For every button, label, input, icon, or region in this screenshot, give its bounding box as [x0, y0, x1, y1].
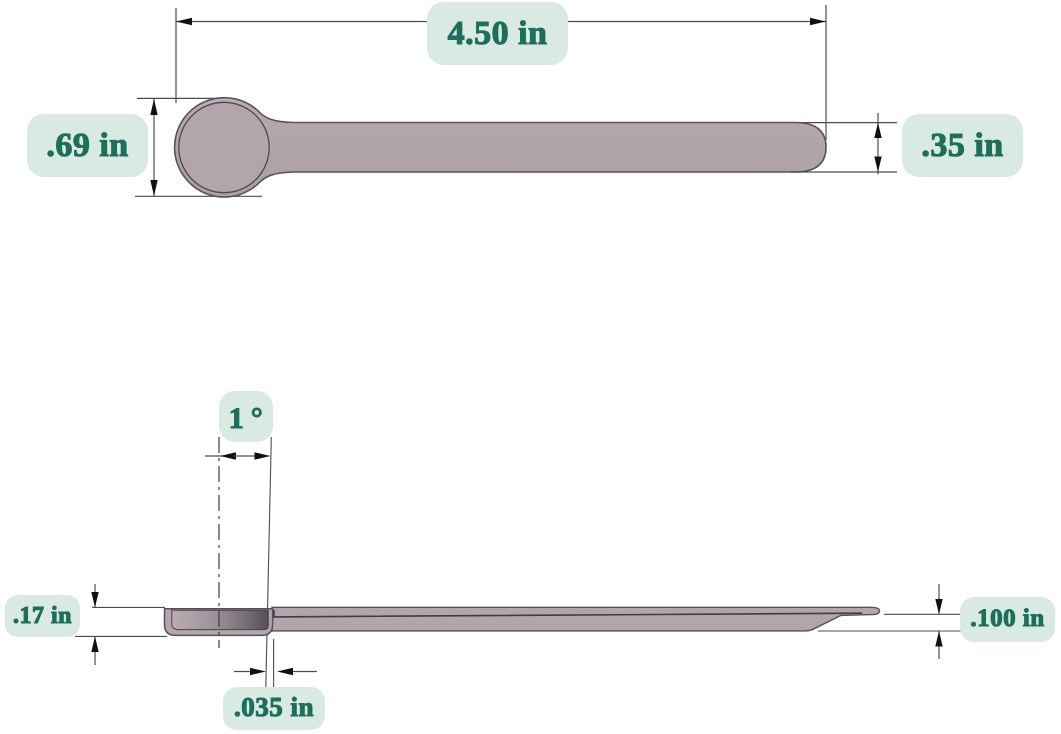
svg-text:.035 in: .035 in [234, 692, 314, 722]
svg-text:4.50 in: 4.50 in [448, 15, 548, 52]
svg-text:.35 in: .35 in [921, 127, 1003, 164]
svg-text:1 °: 1 ° [229, 402, 264, 435]
svg-text:.69 in: .69 in [46, 127, 128, 164]
svg-text:.100 in: .100 in [970, 605, 1044, 632]
svg-text:.17 in: .17 in [13, 603, 72, 629]
